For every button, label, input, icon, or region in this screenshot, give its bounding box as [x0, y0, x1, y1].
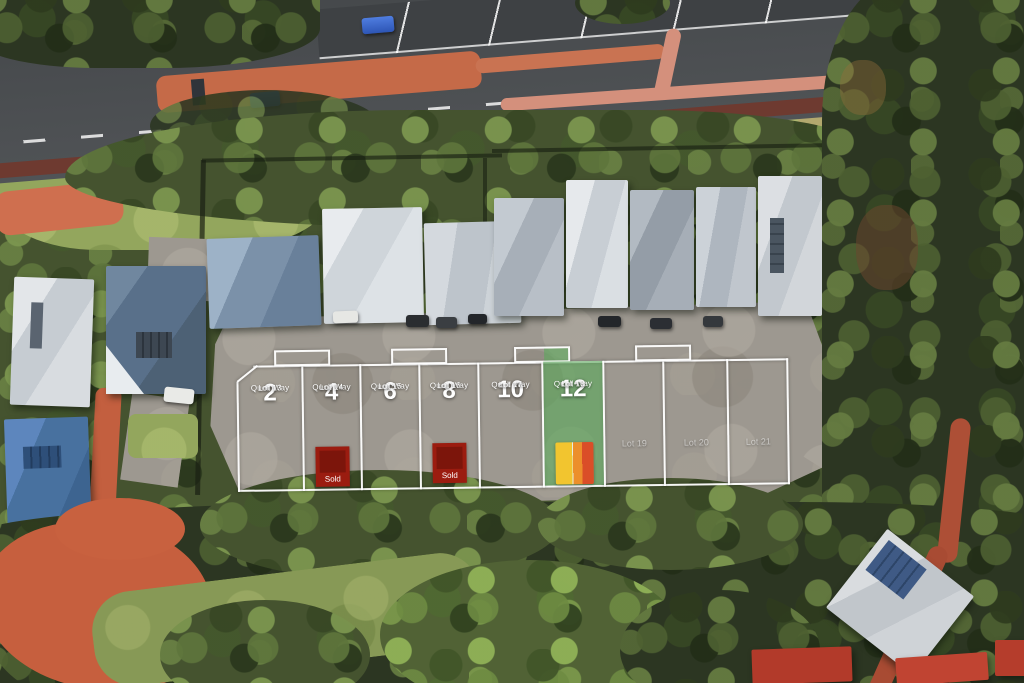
lot-overlay: 2 Quoll Way Lot 13 4 Quoll Way Lot 14 So… — [227, 334, 809, 502]
lot-8[interactable]: 8 Quoll Way Lot 16 Sold — [420, 363, 479, 488]
townhouse-roof-gray-dark — [630, 190, 694, 310]
car-dark — [650, 318, 672, 329]
lot-4[interactable]: 4 Quoll Way Lot 14 Sold — [303, 364, 361, 489]
dirt-patch — [840, 60, 886, 115]
lot-number-label: Lot 15 — [378, 382, 402, 392]
townhouse-roof-light — [758, 176, 822, 316]
solar-panel-icon — [30, 302, 44, 348]
red-roof — [751, 646, 852, 683]
solar-panel-icon — [770, 218, 784, 273]
townhouse-roof-blue — [206, 235, 321, 329]
median-island-ext — [475, 44, 666, 74]
sold-badge-icon — [436, 447, 462, 469]
lot-12-highlighted[interactable]: 12 Quoll Way Lot 18 — [543, 361, 604, 486]
car-white — [333, 311, 358, 324]
lot-number-label: Lot 20 — [684, 437, 709, 447]
townhouse-roof-gray — [696, 187, 756, 307]
red-roof — [995, 640, 1024, 676]
lot-2[interactable]: 2 Quoll Way Lot 13 — [238, 365, 303, 490]
car-dark — [436, 317, 457, 328]
lot-21[interactable]: Lot 21 — [728, 358, 788, 483]
sold-badge-icon — [319, 450, 345, 472]
driveway-notch-green-fill — [544, 348, 568, 360]
availability-flag-icon — [555, 442, 594, 485]
lot-number-label: Lot 13 — [258, 383, 282, 393]
lot-number-label: Lot 16 — [437, 381, 461, 391]
car-dark — [406, 315, 429, 327]
car-blue — [361, 16, 394, 35]
house-roof-darkblue — [106, 266, 206, 394]
aerial-photo: 2 Quoll Way Lot 13 4 Quoll Way Lot 14 So… — [0, 0, 1024, 683]
lot-number-label: Lot 21 — [746, 436, 771, 446]
sold-badge: Sold — [315, 446, 350, 486]
lot-number-label: Lot 14 — [320, 382, 344, 392]
sold-badge-label: Sold — [325, 474, 341, 483]
lot-10[interactable]: 10 Quoll Way Lot 17 — [479, 362, 543, 487]
dirt-patch — [856, 205, 918, 290]
house-roof-white — [10, 277, 94, 408]
lot-6[interactable]: 6 Quoll Way Lot 15 — [361, 363, 420, 488]
car-white-trailer — [163, 386, 194, 404]
red-ground — [55, 498, 185, 560]
sold-badge: Sold — [432, 443, 467, 483]
car-dark — [468, 314, 487, 324]
grass-yard — [128, 414, 198, 458]
car-dark — [598, 316, 621, 327]
townhouse-roof-white — [566, 180, 628, 308]
car-dark — [703, 316, 723, 327]
townhouse-roof-white — [322, 207, 424, 324]
sold-badge-label: Sold — [442, 471, 458, 480]
townhouse-roof-gray — [494, 198, 564, 316]
gable-highlight — [106, 266, 206, 394]
lot-number-label: Lot 17 — [499, 380, 523, 390]
solar-panel-icon — [23, 446, 62, 469]
lot-20[interactable]: Lot 20 — [664, 359, 728, 484]
lot-number-label: Lot 18 — [561, 379, 585, 389]
lot-19[interactable]: Lot 19 — [604, 360, 664, 485]
lot-number-label: Lot 19 — [622, 438, 647, 448]
red-roof — [895, 652, 989, 683]
solar-panel-icon — [136, 332, 172, 358]
